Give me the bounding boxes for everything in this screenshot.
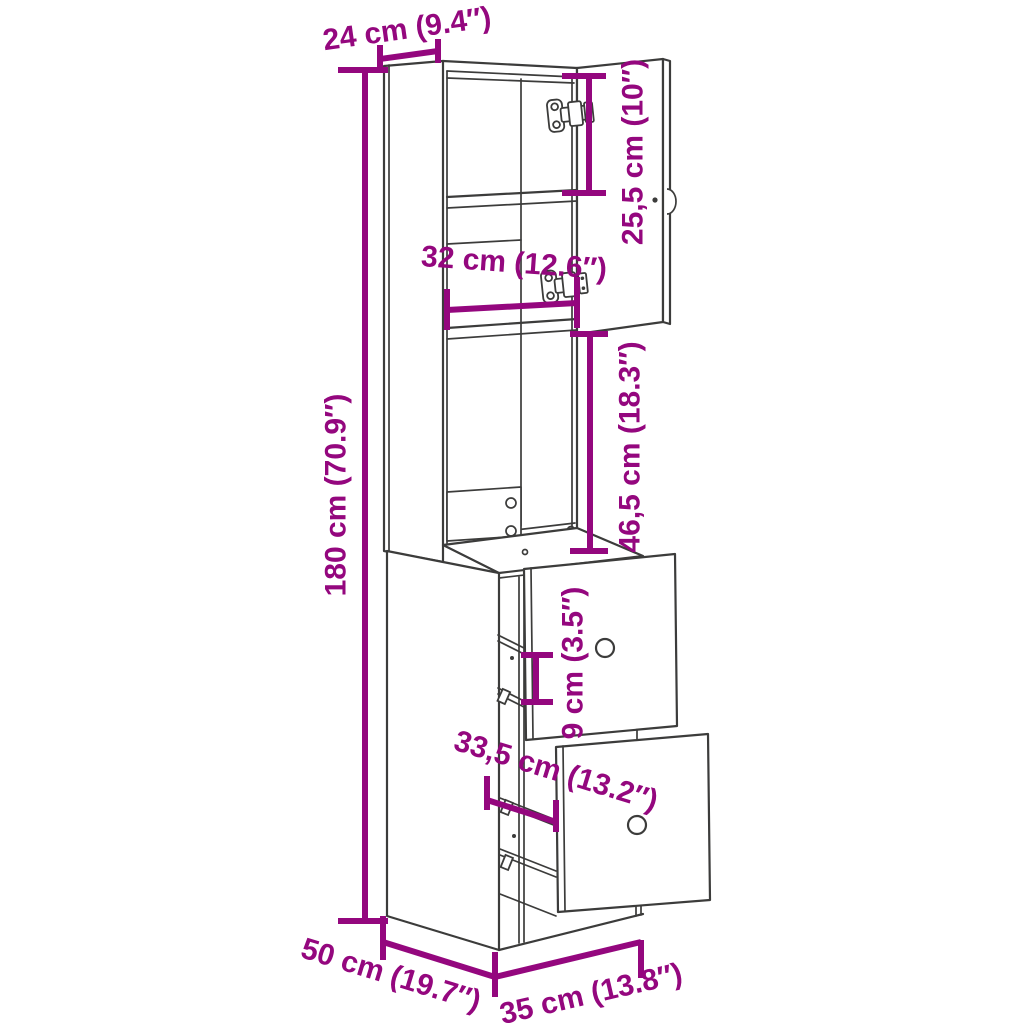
upper-cabinet bbox=[384, 61, 577, 562]
dim-interior-width: 32 cm (12.6″) bbox=[420, 240, 608, 330]
dim-base-width: 35 cm (13.8″) bbox=[495, 940, 685, 1024]
dim-open-section-height: 46,5 cm (18.3″) bbox=[570, 334, 647, 553]
door-handle-recess bbox=[667, 189, 676, 214]
dimension-label-total-height: 180 cm (70.9″) bbox=[320, 394, 353, 597]
dimension-label-upper-compartment-height: 25,5 cm (10″) bbox=[617, 59, 650, 245]
drawer-slide-rails bbox=[497, 635, 524, 707]
diagram-stage: 180 cm (70.9″) 24 cm (9.4″) 25,5 cm (10″… bbox=[0, 0, 1024, 1024]
lower-back-panel bbox=[447, 487, 521, 541]
upper-left-side-panel bbox=[384, 61, 443, 562]
drawer-knob-hole bbox=[628, 816, 646, 834]
drawer-knob-hole bbox=[596, 639, 614, 657]
middle-shelf bbox=[447, 319, 577, 339]
dimension-label-open-section-height: 46,5 cm (18.3″) bbox=[614, 341, 647, 552]
upper-drawer bbox=[524, 554, 677, 740]
door-handle-dot bbox=[652, 197, 657, 202]
dim-top-depth: 24 cm (9.4″) bbox=[321, 1, 493, 71]
cabinet-dimension-diagram: 180 cm (70.9″) 24 cm (9.4″) 25,5 cm (10″… bbox=[0, 0, 1024, 1024]
dim-total-height: 180 cm (70.9″) bbox=[320, 70, 389, 921]
dimension-label-top-depth: 24 cm (9.4″) bbox=[321, 1, 493, 57]
upper-shelf bbox=[447, 190, 577, 208]
dimension-label-drawer-spacing: 9 cm (3.5″) bbox=[557, 587, 590, 740]
